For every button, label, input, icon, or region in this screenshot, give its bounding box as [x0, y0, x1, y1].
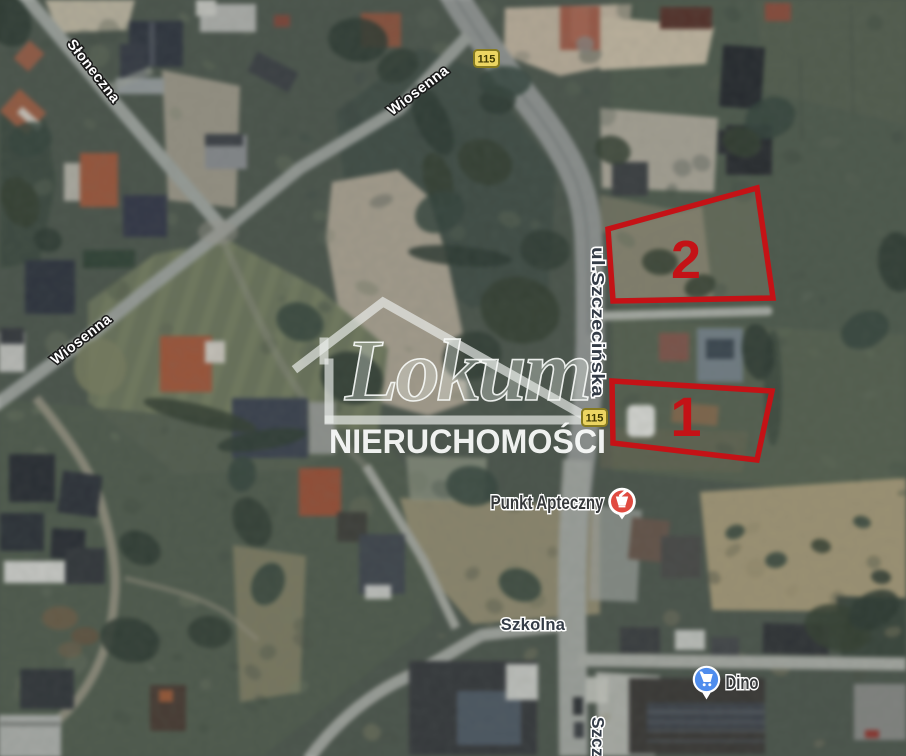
svg-text:Punkt Apteczny: Punkt Apteczny — [491, 493, 604, 514]
svg-text:2: 2 — [671, 230, 701, 290]
svg-text:Szcze: Szcze — [588, 717, 608, 756]
svg-text:115: 115 — [586, 413, 604, 425]
svg-text:Dino: Dino — [726, 673, 759, 694]
svg-text:Szkolna: Szkolna — [501, 616, 566, 634]
svg-text:1: 1 — [670, 385, 701, 448]
svg-text:Lokum: Lokum — [344, 323, 589, 420]
svg-text:ul.Szczecińska: ul.Szczecińska — [588, 247, 608, 397]
svg-text:115: 115 — [478, 54, 496, 66]
svg-text:NIERUCHOMOŚCI: NIERUCHOMOŚCI — [329, 423, 606, 461]
